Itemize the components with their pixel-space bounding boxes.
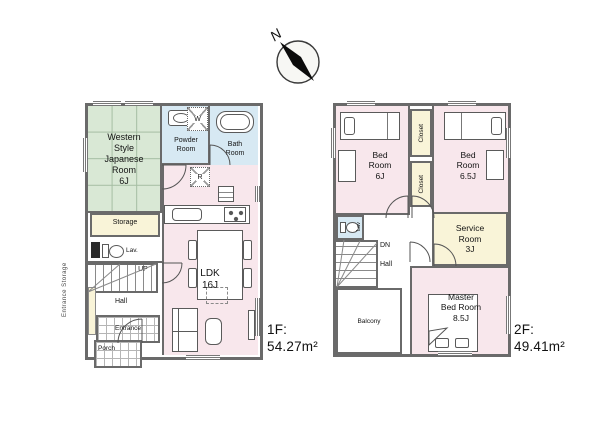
room-porch-label: Porch (98, 345, 136, 353)
washing-machine-icon: W (187, 107, 208, 131)
kitchen-sink-icon (172, 208, 202, 221)
stairs-down-label: DN (380, 242, 398, 251)
chair-icon (243, 268, 252, 288)
pillow-icon (491, 117, 502, 135)
room-bedroom-6j-label: Bed Room 6J (356, 150, 404, 181)
floor2-title: 2F: (514, 321, 565, 338)
floor-plan-canvas: N Western Style Japanese Room 6J Storage… (0, 0, 600, 443)
room-closet-b: Closet (410, 161, 432, 207)
window-icon (438, 351, 472, 356)
stairs-down (336, 240, 378, 288)
room-bath-label: Bath Room (213, 141, 257, 158)
sofa-icon (172, 308, 198, 352)
toilet-bowl-icon (109, 245, 124, 258)
washing-machine-label: W (193, 116, 202, 123)
room-service: Service Room 3J (432, 212, 508, 266)
pillow-icon (455, 338, 469, 348)
room-closet-b-label: Closet (418, 175, 425, 193)
window-icon (347, 101, 375, 106)
window-icon (331, 128, 336, 158)
chair-icon (243, 240, 252, 260)
room-bedroom-6-5j-label: Bed Room 6.5J (440, 150, 496, 181)
floor1-title: 1F: (267, 321, 318, 338)
toilet-tank-icon (102, 244, 109, 258)
room-ldk-label: LDK 16J (186, 268, 234, 292)
window-icon (255, 186, 260, 202)
entrance-storage-annotation: Entrance Storage (62, 260, 69, 320)
room-lavatory-2f-label: Lav (356, 218, 363, 236)
window-icon (255, 298, 260, 336)
floor1-plan: Western Style Japanese Room 6J Storage L… (85, 103, 263, 360)
floor1-area-label: 1F: 54.27m² (267, 321, 318, 355)
window-icon (186, 355, 220, 360)
compass: N (268, 24, 330, 88)
room-closet-a: Closet (410, 109, 432, 157)
window-icon (506, 296, 511, 334)
refrigerator-label: R (196, 174, 203, 181)
floor2-plan: Bed Room 6J Closet Closet Bed Room 6.5J … (333, 103, 511, 357)
stairs-up-label: UP (134, 266, 152, 275)
room-lavatory-1f-label: Lav. (126, 247, 150, 255)
window-icon (506, 128, 511, 158)
room-entrance-label: Entrance (96, 325, 160, 333)
room-japanese-label: Western Style Japanese Room 6J (92, 132, 156, 187)
cupboard-icon (218, 186, 234, 202)
window-icon (93, 101, 121, 106)
room-balcony-label: Balcony (340, 318, 398, 326)
window-icon (125, 101, 153, 106)
coffee-table-icon (205, 318, 222, 345)
cabinet-icon (91, 242, 100, 258)
room-master-bedroom-label: Master Bed Room 8.5J (430, 292, 492, 323)
chair-icon (188, 240, 197, 260)
pillow-icon (344, 117, 355, 135)
compass-north-label: N (268, 25, 285, 44)
room-service-label: Service Room 3J (456, 223, 484, 254)
tv-board-icon (248, 310, 255, 340)
entrance-storage (88, 287, 96, 335)
room-closet-a-label: Closet (418, 124, 425, 142)
room-powder-label: Powder Room (163, 137, 209, 154)
room-storage-label: Storage (90, 219, 160, 228)
floor2-area: 49.41m² (514, 338, 565, 355)
stove-icon (224, 207, 246, 222)
window-icon (83, 138, 88, 172)
refrigerator-icon: R (190, 167, 210, 187)
window-icon (448, 101, 476, 106)
bathtub-inner-icon (220, 114, 250, 130)
pillow-icon (435, 338, 449, 348)
hall-2f-label: Hall (380, 261, 406, 270)
floor2-area-label: 2F: 49.41m² (514, 321, 565, 355)
floor1-area: 54.27m² (267, 338, 318, 355)
hall-1f-label: Hall (106, 298, 136, 307)
desk-icon (338, 150, 356, 182)
